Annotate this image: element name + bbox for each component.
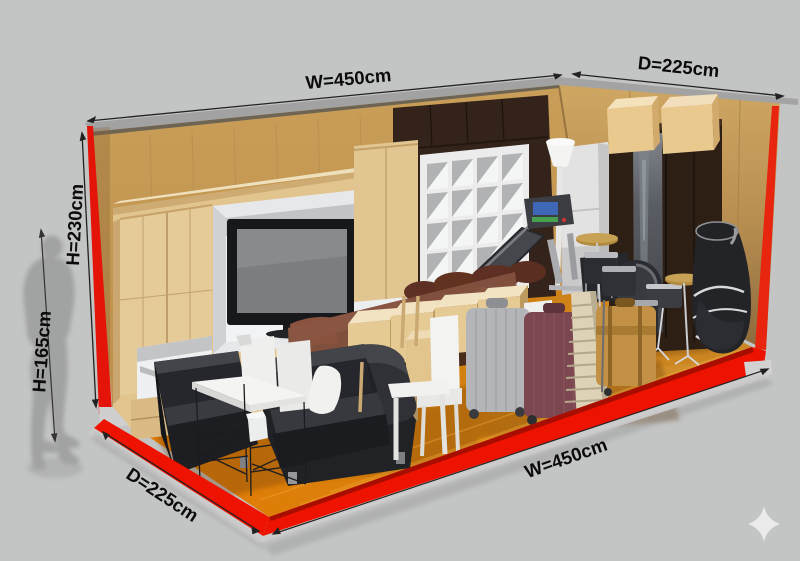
svg-text:H=230cm: H=230cm — [62, 183, 87, 266]
